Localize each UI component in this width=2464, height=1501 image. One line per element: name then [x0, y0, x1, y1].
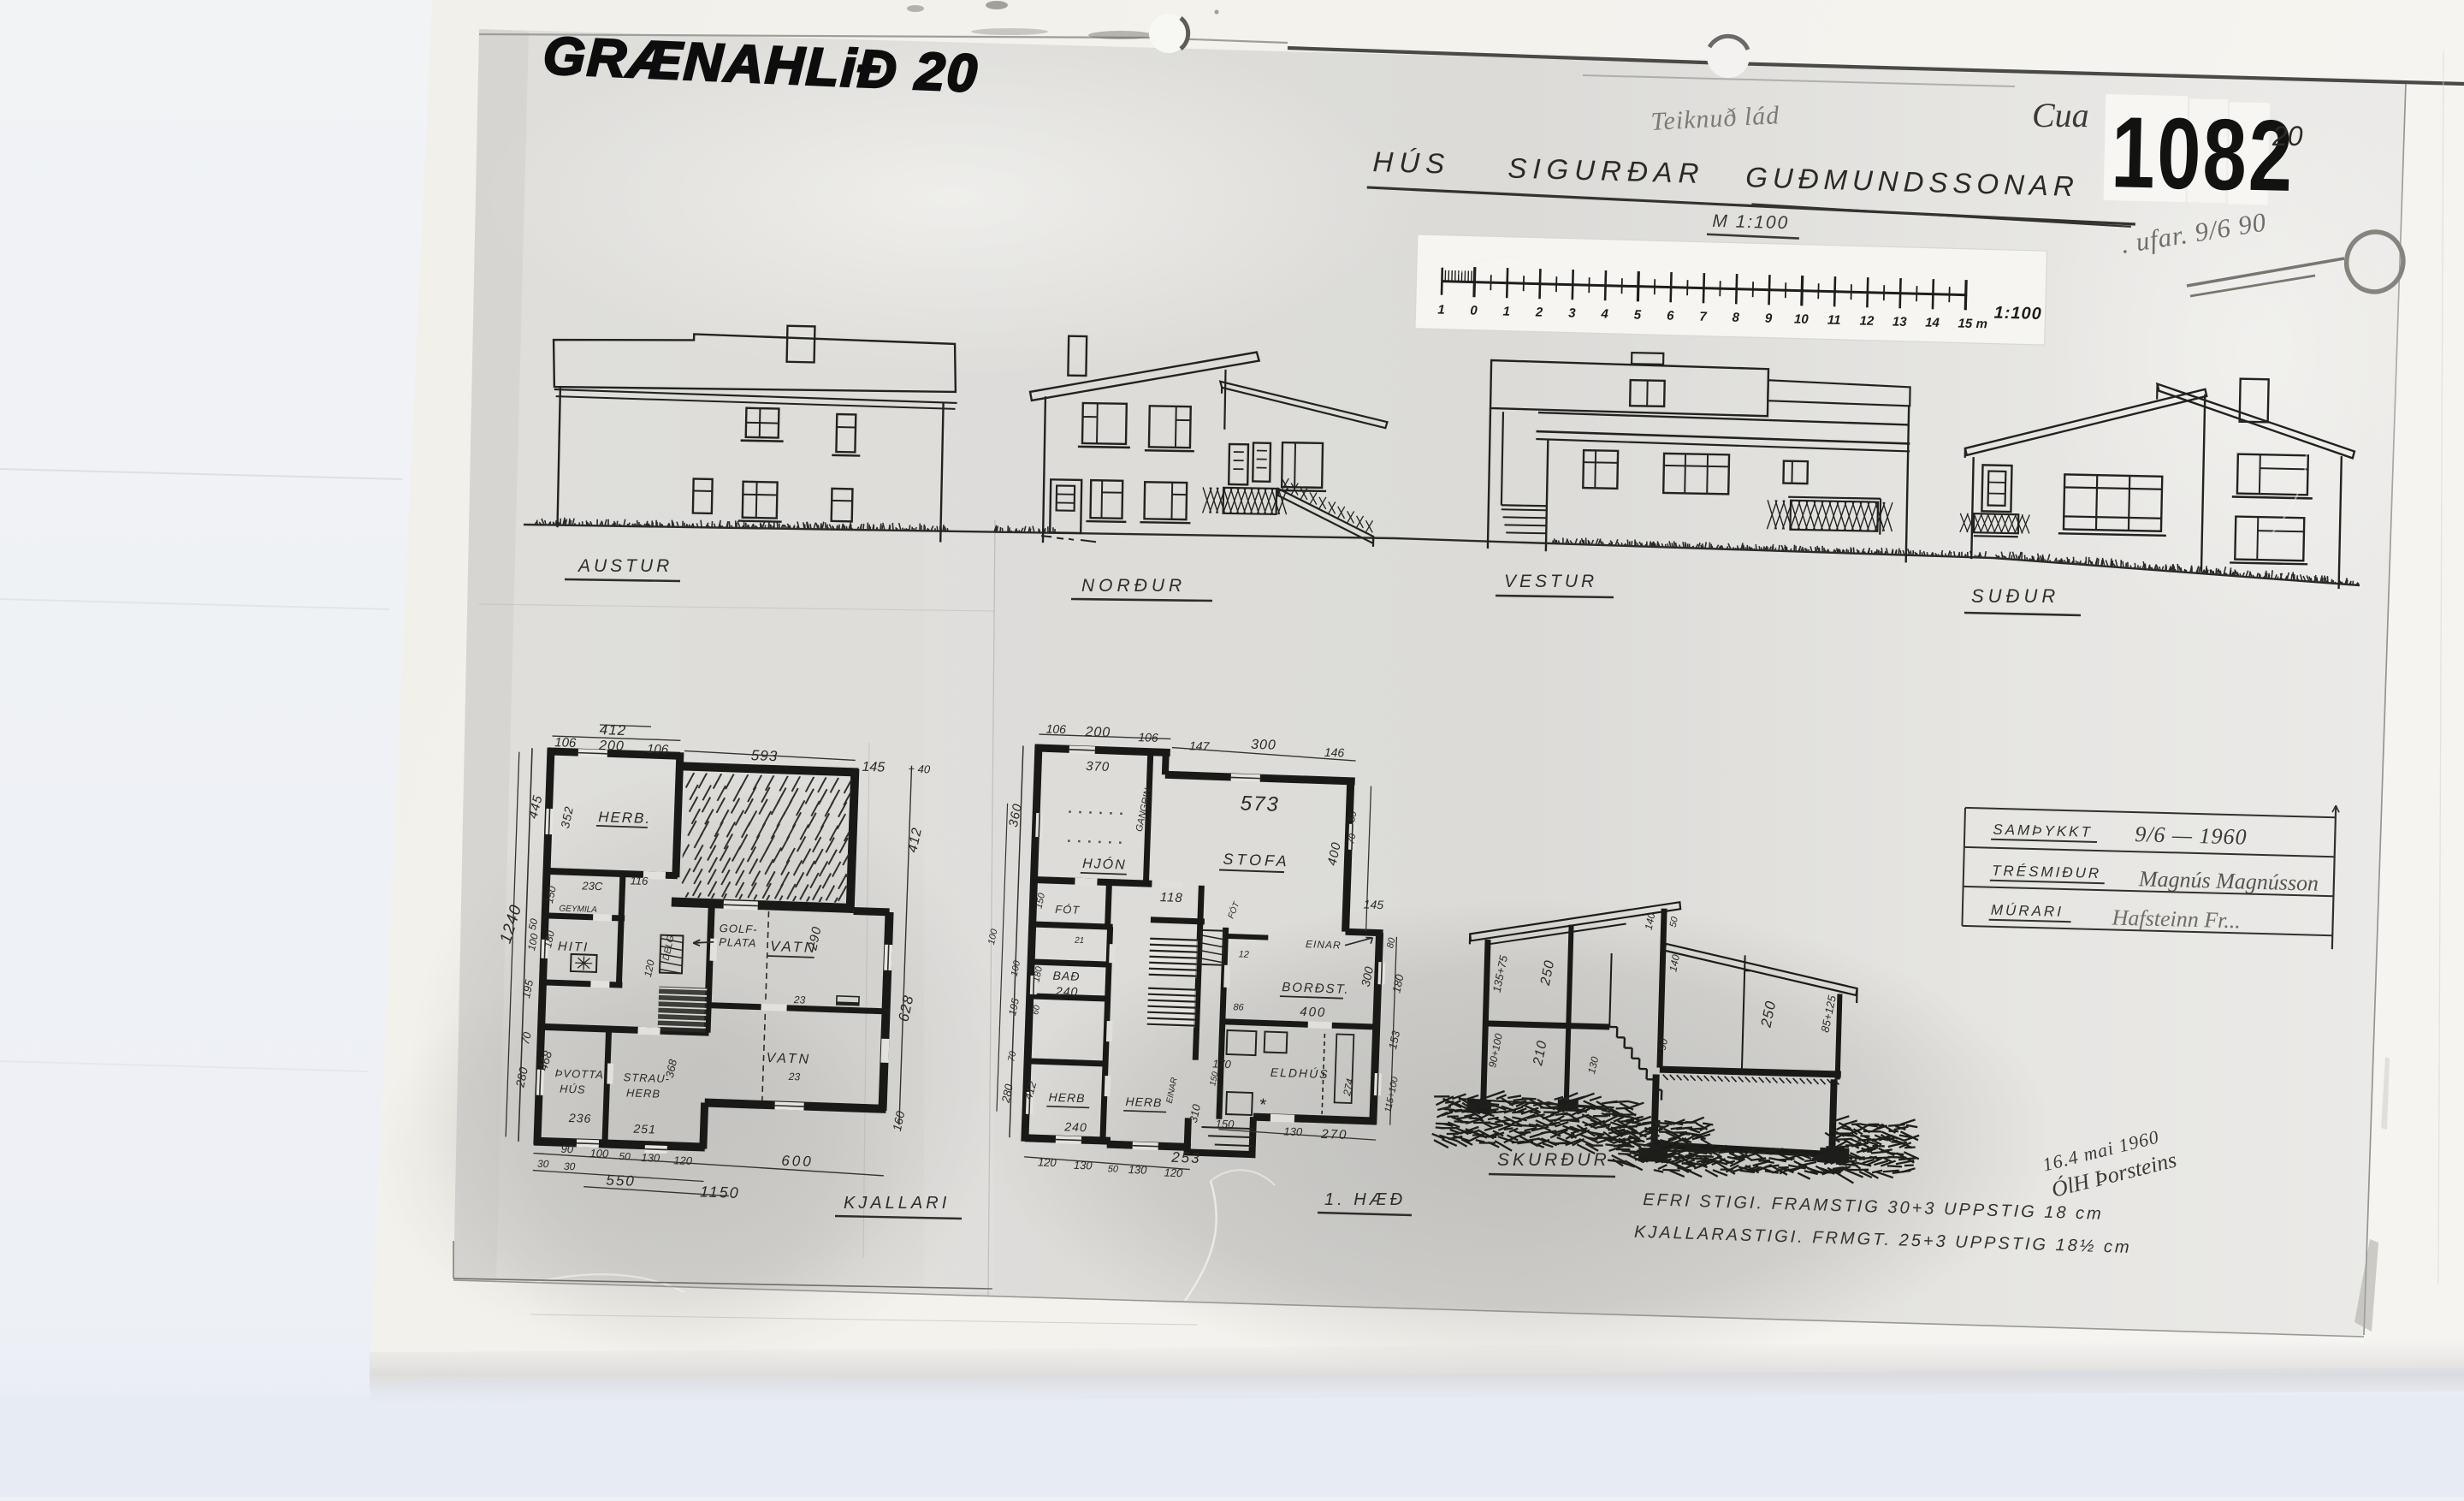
svg-text:145: 145 — [862, 760, 885, 775]
svg-text:130: 130 — [1283, 1124, 1303, 1138]
svg-text:130: 130 — [1074, 1159, 1093, 1172]
svg-text:86: 86 — [1233, 1002, 1245, 1012]
svg-text:MÚRARI: MÚRARI — [1991, 902, 2064, 920]
svg-text:2: 2 — [1535, 306, 1543, 320]
svg-text:FÓT: FÓT — [1055, 903, 1081, 917]
svg-text:145: 145 — [1363, 897, 1383, 911]
svg-text:240: 240 — [1055, 984, 1079, 999]
svg-text:Cua: Cua — [2032, 96, 2089, 134]
svg-text:370: 370 — [1086, 759, 1111, 774]
svg-text:KJALLARI: KJALLARI — [844, 1194, 950, 1213]
svg-text:Magnús Magnússon: Magnús Magnússon — [2138, 866, 2319, 896]
svg-text:+ 40: + 40 — [908, 762, 931, 776]
svg-text:1:100: 1:100 — [1993, 304, 2042, 323]
svg-text:1082: 1082 — [2110, 96, 2295, 212]
svg-text:573: 573 — [1240, 792, 1280, 816]
svg-text:100: 100 — [589, 1147, 609, 1160]
svg-text:106: 106 — [554, 735, 577, 750]
svg-text:236: 236 — [568, 1111, 592, 1125]
svg-text:12: 12 — [1859, 313, 1875, 328]
svg-text:TRÉSMIÐUR: TRÉSMIÐUR — [1992, 863, 2102, 881]
svg-text:SAMÞYKKT: SAMÞYKKT — [1993, 822, 2093, 840]
svg-text:9/6 — 1960: 9/6 — 1960 — [2135, 822, 2248, 849]
svg-text:106: 106 — [647, 742, 669, 757]
svg-text:251: 251 — [632, 1122, 656, 1136]
svg-text:GEYMILA: GEYMILA — [559, 904, 597, 915]
svg-text:23: 23 — [793, 994, 806, 1006]
svg-text:VATN: VATN — [766, 1051, 811, 1067]
svg-text:50: 50 — [1108, 1164, 1120, 1174]
svg-text:3: 3 — [1568, 306, 1576, 321]
svg-text:M 1:100: M 1:100 — [1712, 211, 1789, 233]
svg-text:6: 6 — [1667, 309, 1674, 323]
svg-text:200: 200 — [1084, 725, 1111, 740]
svg-text:BAÐ: BAÐ — [1052, 969, 1080, 983]
svg-text:147: 147 — [1189, 739, 1211, 753]
svg-text:4: 4 — [1600, 307, 1608, 322]
svg-text:SKURÐUR: SKURÐUR — [1497, 1150, 1610, 1170]
svg-text:106: 106 — [1138, 730, 1158, 745]
svg-text:HERB: HERB — [1125, 1095, 1162, 1109]
svg-text:1. HÆÐ: 1. HÆÐ — [1324, 1190, 1406, 1209]
svg-text:12: 12 — [1238, 949, 1249, 959]
svg-text:0: 0 — [1470, 304, 1478, 318]
svg-text:HJÓN: HJÓN — [1082, 855, 1127, 873]
svg-text:170: 170 — [1212, 1057, 1232, 1071]
svg-text:253: 253 — [1170, 1149, 1201, 1166]
svg-text:118: 118 — [1160, 890, 1183, 905]
svg-text:23: 23 — [788, 1071, 801, 1083]
svg-text:ELDHÚS: ELDHÚS — [1270, 1065, 1330, 1081]
svg-text:550: 550 — [606, 1172, 636, 1190]
svg-text:146: 146 — [1324, 745, 1345, 760]
svg-text:AUSTUR: AUSTUR — [577, 556, 672, 576]
svg-text:HÚS: HÚS — [1372, 145, 1451, 180]
svg-text:HERB.: HERB. — [598, 809, 652, 827]
svg-text:ÞVOTTA: ÞVOTTA — [555, 1066, 605, 1081]
svg-text:412: 412 — [599, 721, 626, 739]
svg-text:STOFA: STOFA — [1223, 851, 1290, 870]
svg-text:106: 106 — [1045, 721, 1066, 736]
svg-text:120: 120 — [1038, 1155, 1057, 1169]
svg-text:23C: 23C — [581, 879, 603, 893]
svg-text:HÚS: HÚS — [560, 1083, 586, 1096]
svg-text:Hafsteinn Fr...: Hafsteinn Fr... — [2111, 905, 2241, 933]
svg-text:NORÐUR: NORÐUR — [1081, 576, 1186, 596]
svg-text:116: 116 — [630, 874, 649, 887]
svg-text:20: 20 — [2271, 121, 2303, 151]
svg-text:14: 14 — [1925, 315, 1940, 329]
svg-text:VESTUR: VESTUR — [1504, 572, 1597, 591]
svg-text:1150: 1150 — [700, 1183, 740, 1201]
svg-text:270: 270 — [1320, 1127, 1348, 1142]
svg-text:130: 130 — [1128, 1163, 1147, 1177]
svg-text:50: 50 — [619, 1150, 631, 1162]
svg-text:30: 30 — [537, 1158, 549, 1170]
svg-text:*: * — [1259, 1095, 1268, 1114]
svg-text:593: 593 — [751, 747, 779, 764]
svg-text:7: 7 — [1699, 310, 1707, 324]
svg-text:30: 30 — [564, 1160, 576, 1172]
svg-text:13: 13 — [1892, 314, 1908, 329]
svg-text:HERB: HERB — [1048, 1090, 1085, 1105]
svg-text:10: 10 — [1794, 311, 1809, 326]
svg-text:200: 200 — [598, 739, 625, 754]
svg-text:SUÐUR: SUÐUR — [1971, 585, 2059, 607]
svg-text:SIGURÐAR: SIGURÐAR — [1507, 152, 1705, 189]
svg-text:300: 300 — [1251, 738, 1276, 753]
svg-text:HERB: HERB — [626, 1086, 661, 1100]
svg-text:90: 90 — [560, 1142, 574, 1156]
svg-text:600: 600 — [781, 1153, 814, 1170]
svg-text:130: 130 — [641, 1151, 660, 1165]
svg-text:5: 5 — [1634, 308, 1642, 323]
svg-text:15: 15 — [1958, 316, 1973, 330]
svg-text:11: 11 — [1827, 312, 1841, 327]
svg-text:1: 1 — [1437, 303, 1445, 317]
svg-text:400: 400 — [1300, 1005, 1327, 1020]
svg-text:21: 21 — [1074, 936, 1085, 946]
svg-text:HITI: HITI — [558, 939, 589, 954]
svg-text:EINAR: EINAR — [1306, 938, 1342, 951]
svg-text:9: 9 — [1765, 311, 1773, 326]
svg-text:m: m — [1975, 317, 1987, 331]
svg-text:120: 120 — [1164, 1166, 1183, 1179]
svg-text:GOLF-: GOLF- — [720, 922, 758, 936]
svg-text:PLATA: PLATA — [719, 935, 757, 950]
svg-text:1: 1 — [1502, 305, 1510, 319]
svg-text:150: 150 — [1215, 1118, 1235, 1131]
svg-text:8: 8 — [1732, 311, 1739, 325]
svg-text:120: 120 — [673, 1154, 693, 1167]
svg-text:240: 240 — [1063, 1119, 1087, 1134]
svg-text:BORÐST.: BORÐST. — [1282, 980, 1350, 997]
